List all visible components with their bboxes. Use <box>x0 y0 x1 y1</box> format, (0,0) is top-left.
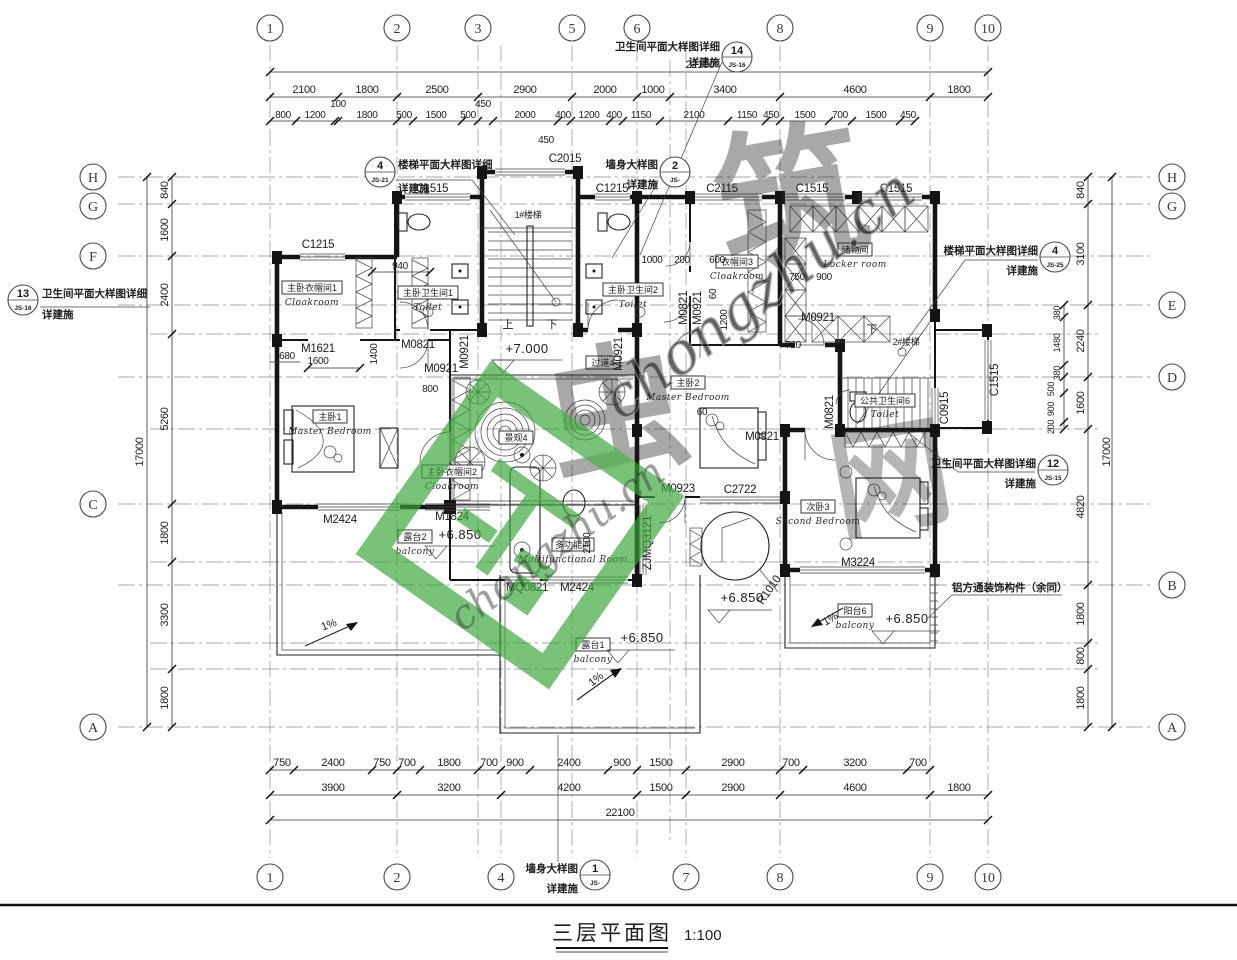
floor-plan-sheet: 22100 2100 1800 2500 2900 2000 1000 3400… <box>0 0 1237 960</box>
svg-text:主卧卫生间1: 主卧卫生间1 <box>403 287 453 298</box>
svg-text:详建施: 详建施 <box>398 182 430 195</box>
svg-text:墙身大样图: 墙身大样图 <box>606 158 659 171</box>
dim-top2-3: 1800 <box>356 110 378 121</box>
dim-bot1-1: 2400 <box>321 757 344 769</box>
drawing-title: 三层平面图 <box>552 922 672 945</box>
svg-text:公共卫生间6: 公共卫生间6 <box>860 395 910 406</box>
svg-text:JS-: JS- <box>590 880 600 887</box>
svg-text:详建施: 详建施 <box>1007 264 1039 277</box>
dim-top2-5: 1500 <box>425 110 447 121</box>
stair1-label: 1#楼梯 <box>515 209 542 220</box>
svg-text:D: D <box>1167 371 1177 386</box>
shower-room-r1010 <box>701 512 778 592</box>
room-label-master1: 主卧1Master Bedroom <box>287 410 372 437</box>
dim-bot1-5: 700 <box>480 757 498 769</box>
svg-text:balcony: balcony <box>836 621 875 631</box>
dim-bot1-11: 700 <box>782 757 800 769</box>
dim-overall-bottom: 22100 <box>605 807 634 819</box>
svg-text:详建施: 详建施 <box>547 882 579 895</box>
svg-text:E: E <box>1168 299 1177 314</box>
svg-text:4: 4 <box>1052 245 1059 257</box>
dim-top-extra450: 450 <box>538 135 555 146</box>
dim-right-7: 1800 <box>1075 686 1087 709</box>
axis-bubble-bottom-4: 4 <box>488 864 514 890</box>
axis-bubble-left-G: G <box>80 193 106 219</box>
dim-top2-6: 500 <box>460 110 477 121</box>
svg-text:2: 2 <box>672 160 678 172</box>
dim-top2-9: 400 <box>555 110 572 121</box>
dim-rsub2-0: 500 <box>1046 382 1056 396</box>
dim-1400: 1400 <box>369 343 380 365</box>
axis-bubble-right-B: B <box>1159 572 1185 598</box>
dim-top2-2: 100 <box>330 99 347 110</box>
dim-bot2-5: 4600 <box>843 782 866 794</box>
axis-bubble-bottom-10: 10 <box>975 864 1001 890</box>
svg-text:JS-: JS- <box>670 177 680 184</box>
axis-bubble-right-A: A <box>1159 714 1185 740</box>
dim-bot1-3: 700 <box>398 757 416 769</box>
dim-top1-1: 1800 <box>355 84 378 96</box>
level-6850-b: +6.850 <box>607 630 675 663</box>
svg-text:1: 1 <box>267 871 274 886</box>
axis-bubble-bottom-7: 7 <box>673 864 699 890</box>
svg-text:主卧卫生间2: 主卧卫生间2 <box>608 284 658 295</box>
dim-left-2: 2400 <box>159 283 171 306</box>
svg-text:1%: 1% <box>586 670 606 689</box>
svg-text:详建施: 详建施 <box>627 178 659 191</box>
dim-top2-12: 1150 <box>631 110 652 121</box>
svg-text:楼梯平面大样图详细: 楼梯平面大样图详细 <box>944 244 1039 257</box>
stair-1: 上 下 1#楼梯 <box>482 209 578 331</box>
code-m0921-b: M0921 <box>459 335 471 369</box>
room-label-landscape: 景观4 <box>499 431 533 444</box>
svg-text:主卧衣帽间1: 主卧衣帽间1 <box>287 282 337 293</box>
dim-bot1-4: 1800 <box>437 757 460 769</box>
axis-bubble-top-3: 3 <box>465 15 491 41</box>
svg-text:露台1: 露台1 <box>581 639 604 650</box>
slope-arrow-center: 1% <box>577 668 622 700</box>
svg-text:1: 1 <box>267 22 274 37</box>
axis-bubble-top-1: 1 <box>257 15 283 41</box>
dim-rsub1-0: 380 <box>1052 306 1062 320</box>
svg-text:1%: 1% <box>320 617 339 634</box>
dim-bot1-8: 900 <box>613 757 631 769</box>
dim-200: 200 <box>674 255 691 266</box>
dim-bot2-4: 2900 <box>721 782 744 794</box>
svg-text:JS-25: JS-25 <box>1046 262 1064 269</box>
dim-bot1-9: 1500 <box>649 757 672 769</box>
svg-text:2: 2 <box>394 22 401 37</box>
axis-bubble-bottom-1: 1 <box>257 864 283 890</box>
dim-overall-left: 17000 <box>134 437 146 466</box>
svg-text:JS-21: JS-21 <box>371 177 389 184</box>
svg-text:8: 8 <box>777 22 784 37</box>
toilet2-fixture <box>598 213 630 231</box>
dim-left-5: 3300 <box>159 603 171 626</box>
dim-overall-right: 17000 <box>1101 437 1113 466</box>
stair1-up-label: 上 <box>503 318 514 331</box>
floor-plan-drawing: 22100 2100 1800 2500 2900 2000 1000 3400… <box>0 0 1237 960</box>
dim-left-0: 840 <box>159 181 171 199</box>
svg-text:B: B <box>1167 579 1176 594</box>
dim-right-6: 800 <box>1075 647 1087 665</box>
svg-text:详建施: 详建施 <box>689 56 721 69</box>
dim-600: 600 <box>709 255 726 266</box>
dim-right-3: 1600 <box>1075 391 1087 414</box>
dim-top1-3: 2900 <box>513 84 536 96</box>
svg-text:卫生间平面大样图详细: 卫生间平面大样图详细 <box>615 40 720 53</box>
dim-top2-11: 400 <box>606 110 623 121</box>
dim-top2-10: 1200 <box>578 110 600 121</box>
dim-top1-7: 4600 <box>843 84 866 96</box>
axis-bubble-top-8: 8 <box>767 15 793 41</box>
dim-right-5: 1800 <box>1075 602 1087 625</box>
svg-text:次卧3: 次卧3 <box>806 501 829 512</box>
code-m0821-a: M0821 <box>401 339 435 351</box>
svg-text:13: 13 <box>17 288 29 300</box>
dim-1000: 1000 <box>641 255 663 266</box>
axis-bubble-top-9: 9 <box>917 15 943 41</box>
svg-text:露台2: 露台2 <box>403 531 426 542</box>
axis-bubble-left-A: A <box>80 714 106 740</box>
svg-text:8: 8 <box>777 871 784 886</box>
svg-text:Toilet: Toilet <box>414 303 442 313</box>
dim-bot1-12: 3200 <box>843 757 866 769</box>
dim-680: 680 <box>279 351 296 362</box>
stair1-down-label: 下 <box>547 319 558 331</box>
svg-text:景观4: 景观4 <box>504 433 527 443</box>
dim-bot1-2: 750 <box>373 757 391 769</box>
dim-top2-13: 2100 <box>683 110 705 121</box>
dim-rsub2-1: 900 <box>1046 402 1056 416</box>
code-m1621: M1621 <box>301 343 335 355</box>
title-block: 三层平面图 1:100 <box>0 905 1237 952</box>
svg-text:JS-16: JS-16 <box>14 305 32 312</box>
svg-text:2: 2 <box>394 871 401 886</box>
svg-text:C: C <box>88 498 97 513</box>
room-label-toilet2: 主卧卫生间2Toilet <box>603 283 663 310</box>
code-c1215-a: C1215 <box>302 239 334 251</box>
code-c1515-v: C1515 <box>989 364 1001 396</box>
axis-bubble-right-D: D <box>1159 364 1185 390</box>
axis-bubble-left-F: F <box>80 243 106 269</box>
dim-left-3: 5260 <box>159 407 171 430</box>
svg-text:JS-16: JS-16 <box>728 62 746 69</box>
tree-icon <box>530 455 556 481</box>
drawing-scale: 1:100 <box>684 927 722 944</box>
level-6850-c: +6.850 <box>708 590 772 623</box>
svg-text:Master Bedroom: Master Bedroom <box>287 427 372 437</box>
code-c1215-b: C1215 <box>596 183 628 195</box>
svg-text:H: H <box>88 171 98 186</box>
svg-text:墙身大样图: 墙身大样图 <box>526 862 579 875</box>
code-m3224: M3224 <box>841 557 876 569</box>
svg-text:14: 14 <box>731 45 744 57</box>
dim-left-4: 1800 <box>159 521 171 544</box>
dim-top2-1: 1200 <box>304 110 326 121</box>
svg-text:5: 5 <box>569 22 576 37</box>
svg-text:H: H <box>1167 171 1177 186</box>
svg-text:卫生间平面大样图详细: 卫生间平面大样图详细 <box>42 287 147 300</box>
axis-bubble-top-2: 2 <box>384 15 410 41</box>
dim-top1-6: 3400 <box>713 84 736 96</box>
code-m0921-a: M0921 <box>424 363 458 375</box>
dim-top2-18: 1500 <box>865 110 887 121</box>
dim-bot1-10: 2900 <box>721 757 744 769</box>
dim-60b: 60 <box>697 407 708 418</box>
axis-bubble-bottom-9: 9 <box>917 864 943 890</box>
svg-text:+6.850: +6.850 <box>720 590 763 605</box>
annotation-b13: 13 JS-16 卫生间平面大样图详细 详建施 <box>8 285 150 321</box>
toilet1-fixture <box>398 213 430 231</box>
svg-text:A: A <box>88 721 99 736</box>
dim-top1-2: 2500 <box>425 84 448 96</box>
annotation-aluminum: 铝方通装饰构件（余同） <box>928 581 1068 618</box>
svg-text:详建施: 详建施 <box>42 308 74 321</box>
dim-top2-8: 2000 <box>514 110 536 121</box>
axis-bubble-left-C: C <box>80 491 106 517</box>
dim-bot2-6: 1800 <box>947 782 970 794</box>
svg-text:主卧1: 主卧1 <box>318 411 341 422</box>
dim-bot2-0: 3900 <box>321 782 344 794</box>
dim-940: 940 <box>392 261 409 272</box>
svg-text:6: 6 <box>634 22 641 37</box>
axis-bubble-top-10: 10 <box>975 15 1001 41</box>
dim-right-0: 840 <box>1075 181 1087 199</box>
dim-top1-4: 2000 <box>593 84 616 96</box>
watermark-char3: 网 <box>819 399 962 559</box>
dim-right-2: 2240 <box>1075 329 1087 352</box>
dim-bot1-13: 700 <box>909 757 927 769</box>
axis-bubble-bottom-8: 8 <box>767 864 793 890</box>
svg-text:4: 4 <box>377 160 384 172</box>
dim-720: 720 <box>785 340 802 351</box>
svg-text:7: 7 <box>683 871 690 886</box>
room-label-terrace2: 露台2balcony <box>396 530 435 557</box>
axis-bubble-bottom-2: 2 <box>384 864 410 890</box>
svg-text:Toilet: Toilet <box>619 300 647 310</box>
dim-bot2-2: 4200 <box>557 782 580 794</box>
axis-bubble-right-H: H <box>1159 164 1185 190</box>
axis-bubble-left-H: H <box>80 164 106 190</box>
svg-text:JS-15: JS-15 <box>1044 475 1062 482</box>
code-c2015: C2015 <box>549 153 581 165</box>
svg-text:4: 4 <box>498 871 505 886</box>
svg-text:+6.850: +6.850 <box>885 611 928 626</box>
svg-text:Cloakroom: Cloakroom <box>285 298 339 308</box>
dim-top2-7: 450 <box>475 99 492 110</box>
code-m0921-e: M0921 <box>801 312 835 324</box>
svg-text:9: 9 <box>927 871 934 886</box>
axis-bubble-right-G: G <box>1159 193 1185 219</box>
svg-text:+6.850: +6.850 <box>620 630 663 645</box>
code-m2424-a: M2424 <box>323 514 358 526</box>
room-label-balcony6: 阳台6balcony <box>836 604 875 631</box>
svg-text:12: 12 <box>1047 458 1059 470</box>
svg-text:balcony: balcony <box>574 655 613 665</box>
svg-text:3: 3 <box>475 22 482 37</box>
dim-right-4: 4820 <box>1075 495 1087 518</box>
svg-text:10: 10 <box>981 22 995 37</box>
annotation-b2: 2 JS- 墙身大样图 详建施 <box>606 157 691 258</box>
room-label-cloak1: 主卧衣帽间1Cloakroom <box>282 281 342 308</box>
dim-right-1: 3100 <box>1075 242 1087 265</box>
svg-text:楼梯平面大样图详细: 楼梯平面大样图详细 <box>398 158 493 171</box>
svg-text:F: F <box>89 250 97 265</box>
axis-bubble-right-E: E <box>1159 292 1185 318</box>
dim-top2-19: 450 <box>900 110 917 121</box>
dim-bot1-7: 2400 <box>557 757 580 769</box>
svg-text:A: A <box>1167 721 1178 736</box>
dim-bot1-6: 900 <box>506 757 524 769</box>
svg-text:G: G <box>1167 200 1177 215</box>
svg-text:G: G <box>88 200 98 215</box>
dresser <box>380 428 398 468</box>
dim-bot2-1: 3200 <box>437 782 460 794</box>
axis-bubble-top-6: 6 <box>624 15 650 41</box>
dim-top1-0: 2100 <box>292 84 315 96</box>
svg-text:详建施: 详建施 <box>1005 477 1037 490</box>
annotation-b4-top: 4 JS-21 楼梯平面大样图详细 详建施 <box>365 157 515 235</box>
svg-text:9: 9 <box>927 22 934 37</box>
dim-left-6: 1800 <box>159 686 171 709</box>
dim-bot2-3: 1500 <box>649 782 672 794</box>
svg-text:铝方通装饰构件（余同）: 铝方通装饰构件（余同） <box>952 581 1068 594</box>
code-m0921-f: M0921 <box>745 431 779 443</box>
dim-rsub2-2: 200 <box>1046 420 1056 434</box>
dim-top1-8: 1800 <box>947 84 970 96</box>
dim-rsub1-2: 380 <box>1052 366 1062 380</box>
dim-top2-4: 500 <box>396 110 413 121</box>
axis-bubble-top-5: 5 <box>559 15 585 41</box>
svg-text:10: 10 <box>981 871 995 886</box>
dim-bot1-0: 750 <box>273 757 291 769</box>
dim-top1-5: 1000 <box>641 84 664 96</box>
svg-text:1: 1 <box>592 863 598 875</box>
slope-arrow-left: 1% <box>305 617 358 646</box>
code-c2722: C2722 <box>724 484 756 496</box>
svg-text:阳台6: 阳台6 <box>843 605 866 616</box>
dim-left-1: 1600 <box>159 218 171 241</box>
dim-rsub1-1: 1480 <box>1052 333 1062 352</box>
dim-top2-0: 800 <box>275 110 292 121</box>
dim-800: 800 <box>422 384 439 395</box>
